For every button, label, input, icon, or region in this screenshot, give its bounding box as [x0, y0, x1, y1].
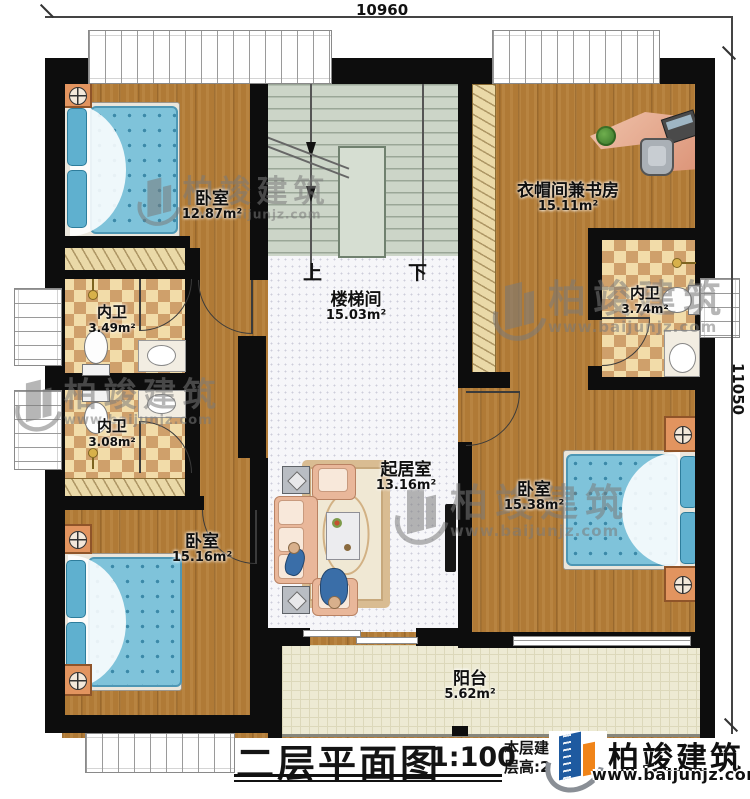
window-left-bath2: [14, 390, 62, 470]
dim-tick: [722, 46, 736, 60]
lamp-stem: [682, 262, 696, 264]
armchair-cushion: [318, 468, 348, 492]
stair-arrow-icon: [306, 186, 316, 202]
pillow: [67, 108, 87, 166]
toilet-tank: [82, 390, 110, 402]
wall-balcony-block: [452, 726, 468, 736]
room-label-balcony: 阳台5.62m²: [444, 670, 495, 702]
side-table: [282, 586, 310, 614]
stair-guide-up: [310, 84, 312, 280]
pillow: [66, 560, 86, 618]
door-leaf: [139, 421, 141, 473]
door-leaf: [251, 280, 253, 334]
stair-guide-down: [422, 84, 424, 280]
pillow: [67, 170, 87, 228]
wardrobe-strip-study: [472, 84, 496, 376]
sink: [147, 345, 176, 366]
window-bedroom-br-balcony: [513, 636, 691, 646]
door-leaf: [139, 279, 141, 331]
door-leaf: [466, 391, 520, 393]
flower-decor: [332, 518, 342, 528]
window-bottom-bedroom-bl: [85, 733, 235, 773]
ceiling-lamp-icon: [88, 448, 98, 458]
room-label-bath2: 内卫3.08m²: [88, 417, 135, 449]
wall-hall-right-lower: [458, 442, 472, 634]
sliding-door-balcony: [356, 637, 418, 644]
wall-corridor-stub: [458, 372, 510, 388]
wall-bedroom-tl-bottom: [62, 236, 190, 248]
sofa-cushion: [278, 500, 304, 525]
flower-decor: [344, 544, 351, 551]
wall-bath3-left-a: [588, 228, 602, 320]
ceiling-lamp-icon: [672, 258, 682, 268]
dim-top-value: 10960: [356, 1, 408, 19]
closet-strip-top: [62, 246, 188, 272]
cabinet-handle-icon: [674, 426, 692, 444]
dim-right-value: 11050: [729, 363, 747, 415]
room-label-stairwell: 楼梯间15.03m²: [326, 291, 386, 323]
wall-bath-left-mid: [45, 373, 193, 390]
window-left-bath1: [14, 288, 62, 366]
wall-living-south-right: [416, 628, 458, 646]
sink: [669, 343, 696, 373]
coffee-table: [326, 512, 360, 560]
tv: [445, 504, 456, 572]
cabinet-handle-icon: [69, 672, 87, 690]
room-label-study: 衣帽间兼书房15.11m²: [517, 182, 619, 214]
office-chair: [640, 138, 674, 176]
wall-bath3-bottom: [588, 377, 700, 390]
wall-bedroom-bl-top-a: [45, 496, 204, 510]
lamp-stem: [92, 458, 94, 469]
room-label-bedroom-bl: 卧室15.16m²: [172, 533, 232, 565]
wall-balcony-right: [700, 645, 715, 738]
wall-below-closet: [62, 270, 190, 279]
title-underline: [234, 774, 502, 782]
floor-plan: 柏竣建筑 www.baijunjz.com 柏竣建筑 www.baijunjz.…: [0, 0, 750, 799]
wall-mid-left-lower: [250, 458, 268, 506]
wall-bedroom-tl-right: [250, 84, 268, 280]
stair-landing: [338, 146, 386, 258]
room-label-bedroom-br: 卧室15.38m²: [504, 481, 564, 513]
door-leaf: [602, 317, 650, 319]
window-top-study: [492, 30, 660, 84]
wall-balcony-left: [268, 640, 282, 738]
stair-down-label: 下: [408, 258, 427, 285]
wall-bottom-bedroom-bl: [45, 715, 268, 733]
cabinet-handle-icon: [674, 576, 692, 594]
room-label-living: 起居室13.16m²: [376, 461, 436, 493]
wall-block-mid-left: [238, 336, 266, 458]
person-head: [328, 596, 341, 609]
door-leaf: [255, 510, 257, 564]
toilet: [84, 330, 108, 364]
wall-bath3-top: [588, 228, 700, 240]
nightstand: [62, 82, 92, 108]
ceiling-lamp-icon: [88, 290, 98, 300]
side-table: [282, 466, 310, 494]
brand-website: www.baijunjz.com: [592, 765, 750, 784]
cabinet-handle-icon: [69, 87, 87, 105]
stair-up-label: 上: [303, 258, 322, 285]
room-label-bath3: 内卫3.74m²: [621, 284, 668, 316]
wall-hall-right-upper: [458, 84, 472, 374]
lamp-stem: [92, 279, 94, 290]
cabinet-handle-icon: [69, 531, 87, 549]
person-head: [288, 542, 300, 554]
plant: [596, 126, 616, 146]
window-top-bedroom: [88, 30, 332, 84]
sink: [147, 394, 176, 414]
sliding-door-balcony: [303, 630, 361, 637]
nightstand: [62, 664, 92, 696]
room-label-bedroom-tl: 卧室12.87m²: [182, 190, 242, 222]
window-right-bath3: [700, 278, 740, 338]
room-label-bath1: 内卫3.49m²: [88, 303, 135, 335]
nightstand: [62, 524, 92, 554]
toilet-tank: [82, 364, 110, 376]
